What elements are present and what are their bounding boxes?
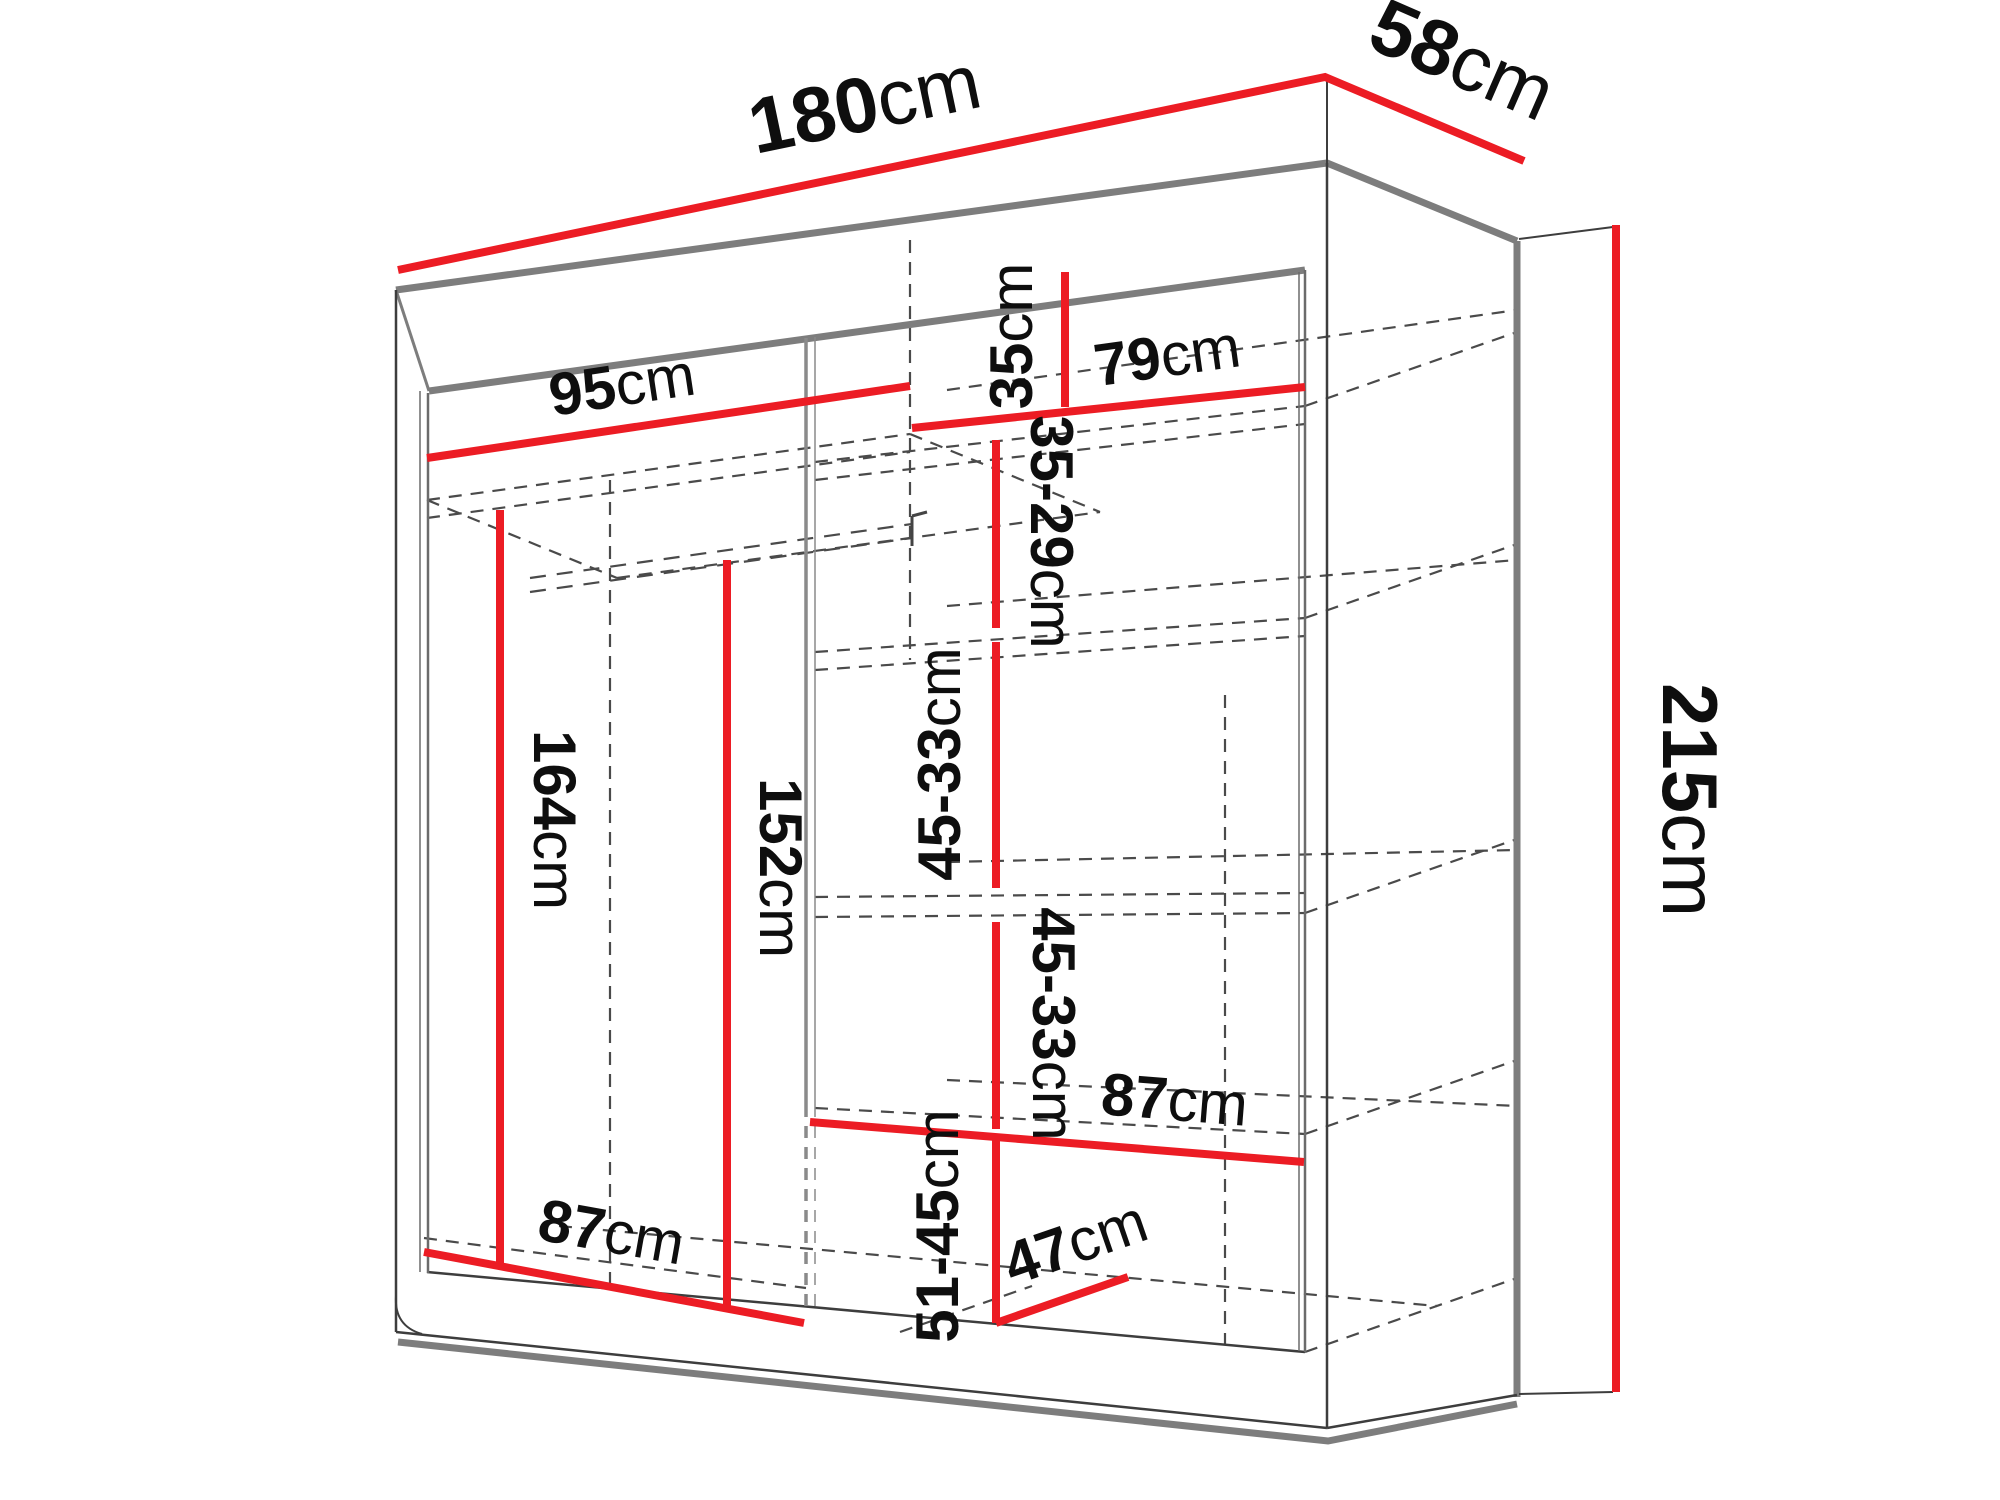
wardrobe-dimension-diagram: 180cm 58cm 215cm 95cm 35cm 79cm 35-29cm … <box>0 0 2000 1500</box>
label-79: 79cm <box>1090 312 1245 399</box>
rail-bracket <box>912 512 927 546</box>
height-extension-top <box>1519 227 1613 239</box>
top-left-depth-edge <box>396 290 429 391</box>
left-shelf-depth-edge <box>427 500 617 578</box>
floor-side-depth-edge <box>1305 1278 1517 1352</box>
bottom-shadow-edge <box>398 1342 1517 1441</box>
label-164: 164cm <box>521 730 588 910</box>
shelf2-side-depth-edge <box>1305 544 1517 618</box>
front-bottom-edge <box>396 1332 1327 1428</box>
label-depth-58: 58cm <box>1358 0 1568 138</box>
label-87-right: 87cm <box>1099 1060 1251 1139</box>
hanging-rail-bottom <box>530 538 912 592</box>
label-45-33-a: 45-33cm <box>906 647 973 880</box>
label-87-left: 87cm <box>533 1186 689 1277</box>
hanging-rail-top <box>530 524 912 578</box>
label-95: 95cm <box>544 341 699 429</box>
height-extension-bottom <box>1519 1392 1613 1394</box>
label-35-29: 35-29cm <box>1018 415 1085 648</box>
shelf1-side-depth-edge <box>1305 332 1517 406</box>
left-shelf-front-edge2 <box>427 452 910 518</box>
top-front-edge <box>396 163 1517 290</box>
shelf4-side-depth-edge <box>1305 1060 1517 1134</box>
inner-bottom-edge <box>427 1272 1305 1352</box>
label-152: 152cm <box>747 778 814 958</box>
label-height-215: 215cm <box>1646 683 1734 917</box>
shelf3-back-edge <box>947 850 1517 862</box>
label-45-33-b: 45-33cm <box>1020 907 1087 1140</box>
label-35: 35cm <box>978 263 1045 410</box>
label-47: 47cm <box>995 1187 1156 1298</box>
label-51-45: 51-45cm <box>904 1109 971 1342</box>
left-foot-curve <box>396 1296 422 1334</box>
diagram-canvas: 180cm 58cm 215cm 95cm 35cm 79cm 35-29cm … <box>0 0 2000 1500</box>
shelf3-front-edge <box>815 893 1305 897</box>
label-width-180: 180cm <box>741 37 988 171</box>
dimension-labels: 180cm 58cm 215cm 95cm 35cm 79cm 35-29cm … <box>521 0 1734 1343</box>
